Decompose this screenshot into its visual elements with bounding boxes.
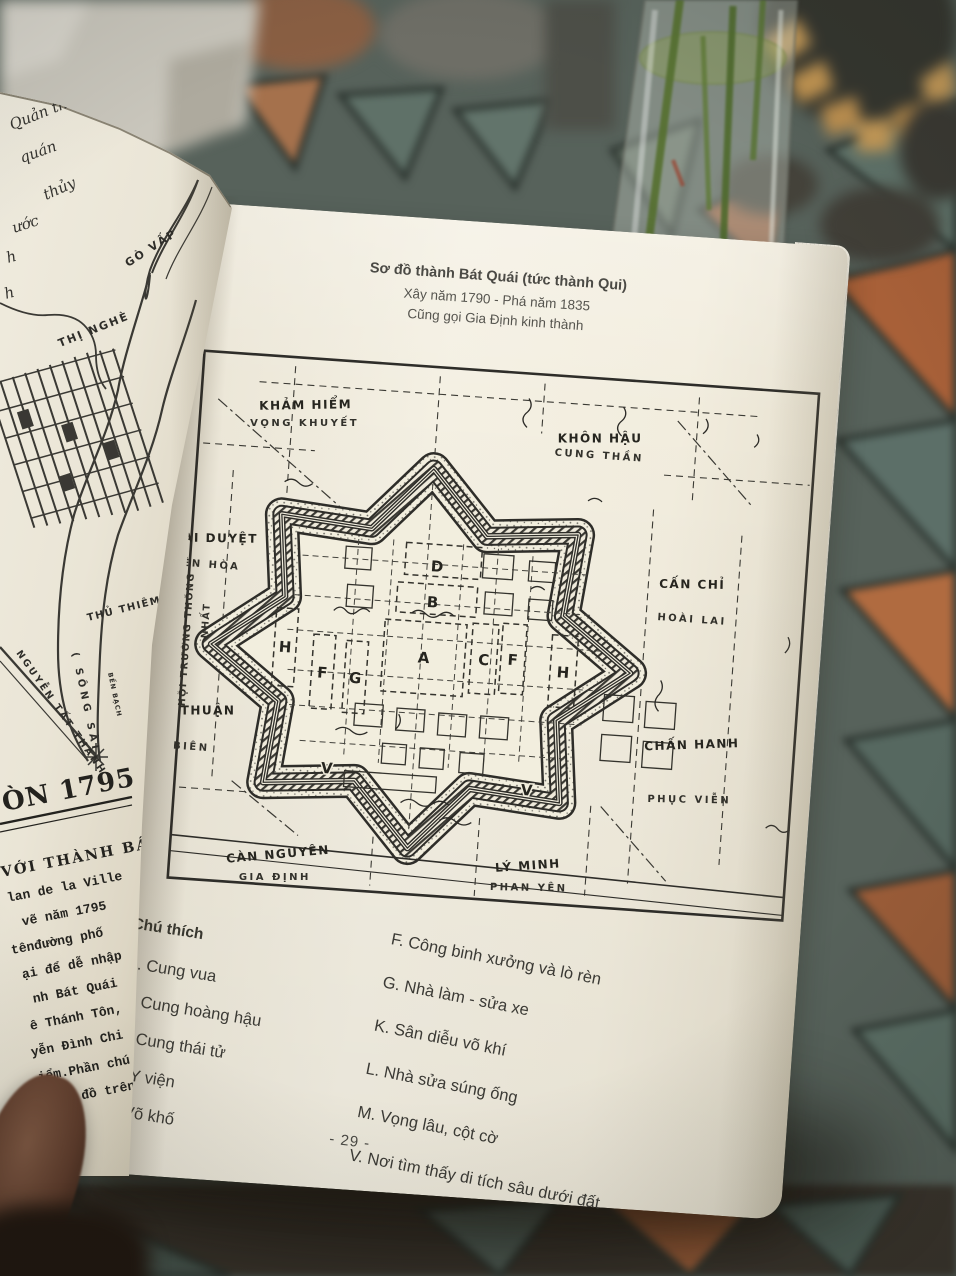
legend-item: K. Sân diễu võ khí [370,1004,629,1096]
letter-d: D [430,557,444,576]
label-thu-thiem: THỦ THIÊM [85,592,162,624]
gate-top-right-name: KHÔN HẬU [558,431,643,446]
letter-h-left: H [278,638,292,657]
legend-item: L. Nhà sửa súng ống [362,1047,621,1139]
figure-title: Sơ đồ thành Bát Quái (tức thành Qui) [209,249,789,305]
legend-item: F. Công binh xưởng và lò rèn [387,917,646,1009]
gate-left-upper-name: ĐOÀI DUYỆT [164,529,258,546]
letter-a: A [417,648,430,667]
star-fort-walls [198,454,643,862]
gate-right-upper-name: CẤN CHỈ [659,574,725,592]
letter-v-right: V [520,781,533,800]
svg-text:yễn Đình Chi: yễn Đình Chi [29,1026,124,1060]
svg-text:ước: ước [10,211,42,237]
letter-h-right: H [556,663,570,682]
svg-text:h: h [4,247,18,267]
inner-street-grid [274,475,613,846]
street-label-line2: NHẤT [198,602,213,639]
legend-item: A. Cung vua [124,945,270,1004]
gate-bottom-left-name: CÀN NGUYÊN [226,842,331,866]
letter-f-right: F [507,651,518,670]
palace-blocks [270,534,584,729]
caption-voi-thanh-bat: VỚI THÀNH BÁT [0,832,163,881]
water-line [640,32,786,84]
svg-text:thủy: thủy [40,173,79,203]
gate-labels: KHẢM HIỂM VỌNG KHUYẾT KHÔN HẬU CUNG THẦN… [164,381,762,917]
letter-f-left: F [317,663,328,682]
outer-street-grid [173,360,816,917]
handwritten-street-names [262,382,819,848]
svg-text:nh Bát Quái: nh Bát Quái [32,976,119,1007]
legend-item: G. Nhà làm - sửa xe [379,961,638,1053]
gate-left-lower-name: TỐN THUẬN [164,700,235,717]
gate-top-left-name: KHẢM HIỂM [259,394,352,413]
letter-b: B [426,593,439,612]
legend-item: M. Vọng lâu, cột cờ [354,1090,613,1182]
left-page-caption: ÒN 1795 VỚI THÀNH BÁT [0,761,163,881]
building-letters: D B A G F H C F H V V [269,547,576,802]
gate-right-upper-alt: HOÀI LAI [657,610,727,628]
letter-c: C [478,651,490,670]
figure-subtitle-altname: Cũng gọi Gia Định kinh thành [205,290,785,350]
gate-top-left-alt: VỌNG KHUYẾT [250,414,359,429]
map-frame [168,351,819,921]
svg-text:h: h [2,283,16,303]
legend-right-column: F. Công binh xưởng và lò rèn G. Nhà làm … [345,917,646,1225]
photo-scene: Sơ đồ thành Bát Quái (tức thành Qui) Xây… [0,0,956,1276]
legend-item: B. Cung hoàng hậu [118,981,264,1040]
letter-g: G [348,669,362,688]
figure-subtitle-dates: Xây năm 1790 - Phá năm 1835 [207,270,787,330]
citadel-map: D B A G F H C F H V V KHẢM HIỂM VỌNG KHU… [164,348,822,925]
label-ben-bach: BẾN BẠCH [106,671,125,717]
gate-right-lower-alt: PHỤC VIỄN [647,790,731,806]
gate-bottom-left-alt: GIA ĐỊNH [239,872,311,883]
gate-bottom-right-alt: PHAN YÊN [490,880,568,894]
letter-v-left: V [320,759,333,778]
figure-caption: Sơ đồ thành Bát Quái (tức thành Qui) Xây… [205,249,788,350]
label-nguyen-tat-thanh: NGUYỄN TẤT THÀNH [14,647,110,777]
right-page: Sơ đồ thành Bát Quái (tức thành Qui) Xây… [102,200,848,1220]
city-street-grid [0,344,165,543]
gate-top-right-alt: CUNG THẦN [554,444,644,464]
gate-bottom-right-name: LÝ MINH [495,855,562,875]
small-buildings [330,544,686,809]
gate-left-lower-alt: AN BIÊN [164,737,210,754]
gate-left-upper-alt: YÊN HÒA [171,555,241,573]
page-number: - 29 - [289,1126,410,1157]
legend-heading: Chú thích [131,915,274,955]
svg-text:vẽ năm 1795: vẽ năm 1795 [21,898,108,929]
glass-vase [585,0,810,270]
svg-text:quán: quán [17,137,59,167]
street-label-line1: HỘI TRƯỜNG THỐNG [175,572,197,707]
gate-right-lower-name: CHẤN HANH [644,733,740,753]
handwritten-notes: Quản thảo quán thủy ước h h [2,87,87,302]
